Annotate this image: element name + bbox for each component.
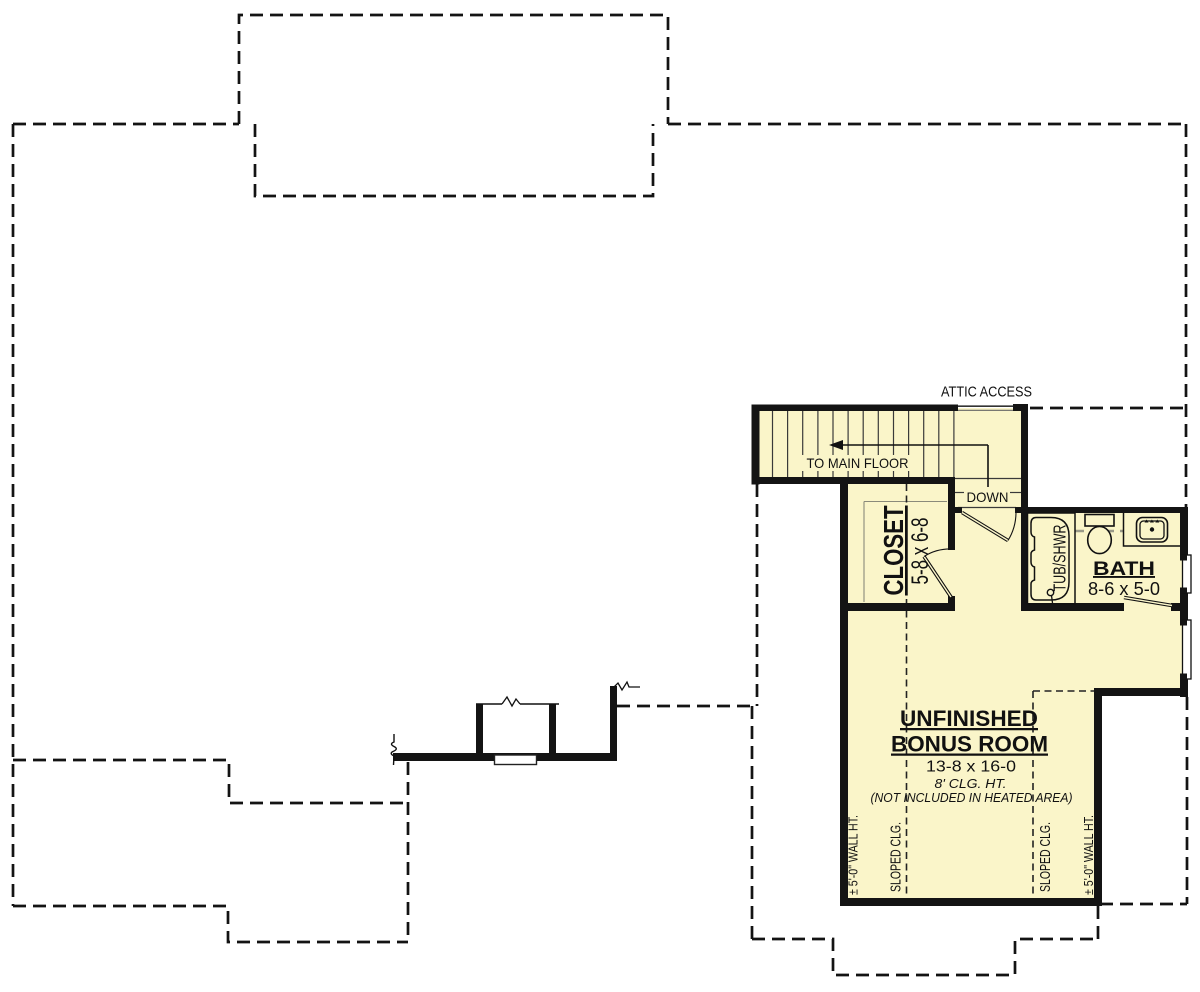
- svg-text:(NOT INCLUDED IN HEATED AREA): (NOT INCLUDED IN HEATED AREA): [871, 790, 1073, 805]
- svg-text:BATH: BATH: [1093, 559, 1155, 580]
- svg-text:5-8 x 6-8: 5-8 x 6-8: [907, 518, 934, 585]
- svg-text:± 5'-0" WALL HT.: ± 5'-0" WALL HT.: [1082, 815, 1096, 895]
- svg-text:8-6 x 5-0: 8-6 x 5-0: [1088, 579, 1160, 599]
- svg-text:SLOPED CLG.: SLOPED CLG.: [1038, 822, 1054, 892]
- svg-text:± 5'-0" WALL HT.: ± 5'-0" WALL HT.: [847, 815, 861, 895]
- svg-text:13-8 x 16-0: 13-8 x 16-0: [926, 759, 1016, 776]
- svg-text:DOWN: DOWN: [967, 489, 1009, 505]
- svg-text:8' CLG. HT.: 8' CLG. HT.: [935, 777, 1007, 791]
- svg-text:BONUS ROOM: BONUS ROOM: [891, 732, 1048, 757]
- svg-text:ATTIC ACCESS: ATTIC ACCESS: [941, 385, 1032, 401]
- svg-text:CLOSET: CLOSET: [878, 505, 909, 595]
- svg-text:UNFINISHED: UNFINISHED: [900, 706, 1038, 731]
- svg-text:TUB/SHWR: TUB/SHWR: [1050, 525, 1070, 592]
- svg-text:SLOPED CLG.: SLOPED CLG.: [889, 822, 905, 892]
- svg-text:TO MAIN FLOOR: TO MAIN FLOOR: [807, 455, 909, 471]
